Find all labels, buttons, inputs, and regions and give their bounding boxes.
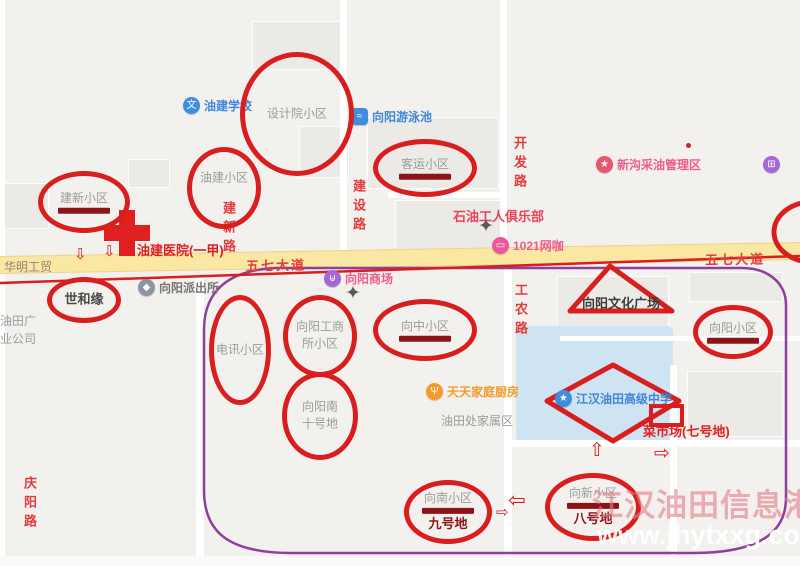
road-label: 五七大道 [246, 254, 306, 274]
road [196, 277, 204, 566]
chat-bubble-icon: ▭ [492, 237, 509, 254]
circle-annotation [282, 372, 358, 460]
arrow-annotation-up: ⇧ [589, 441, 605, 460]
circle-annotation [404, 480, 492, 544]
arrow-annotation-left: ⇦ [508, 490, 526, 511]
police-badge-icon: ◆ [138, 279, 155, 296]
plaza-label: 向阳文化广场 [582, 293, 660, 312]
circle-annotation [187, 147, 261, 229]
poi-label: 向阳游泳池 [372, 108, 432, 125]
poi: ≈向阳游泳池 [351, 108, 432, 125]
road [504, 440, 800, 447]
poi-label: 向阳派出所 [159, 279, 219, 296]
poi-label: 石油工人俱乐部 [453, 206, 544, 225]
circle-annotation [47, 277, 121, 323]
shopping-bag-icon: ⊎ [324, 270, 341, 287]
road-label: 建设路 [349, 179, 368, 236]
star-badge-icon: ★ [596, 156, 613, 173]
restaurant-icon: Ψ [426, 383, 443, 400]
building-block [690, 273, 782, 301]
circle-annotation [373, 139, 477, 197]
poi-label: 油建医院(一甲) [137, 240, 224, 259]
area-label: 油田广 业公司 [0, 312, 36, 348]
crossroad-star-icon: ✦ [478, 217, 494, 236]
poi: Ψ天天家庭厨房 [426, 383, 519, 400]
road [0, 0, 5, 566]
red-dot-annotation [686, 143, 691, 148]
road-label: 庆阳路 [20, 476, 39, 533]
poi-label: 1021网咖 [513, 237, 564, 254]
building-block [129, 160, 169, 187]
road-label: 工农路 [511, 283, 530, 340]
poi: ⊞ [763, 156, 780, 173]
area-label: 油田处家属区 [441, 412, 513, 430]
school-icon: 文 [183, 97, 200, 114]
circle-annotation [693, 305, 773, 359]
road-label: 开发路 [510, 136, 529, 193]
poi-text: 石油工人俱乐部 [453, 206, 544, 225]
poi: ◆向阳派出所 [138, 279, 219, 296]
arrow-annotation-down: ⇩ [103, 244, 116, 259]
poi-label: 新沟采油管理区 [617, 156, 701, 173]
circle-annotation [209, 295, 271, 405]
school-icon: ★ [555, 390, 572, 407]
arrow-annotation-down: ⇩ [74, 247, 87, 262]
shopping-cart-icon: ⊞ [763, 156, 780, 173]
road-label: 五七大道 [705, 248, 765, 268]
map-canvas[interactable]: 向阳文化广场 江汉油田信息港 www.jhytxxg.com 五七大道五七大道建… [0, 0, 800, 566]
poi: ★新沟采油管理区 [596, 156, 701, 173]
circle-annotation [240, 52, 354, 176]
poi-label: 天天家庭厨房 [447, 383, 519, 400]
road [0, 556, 800, 566]
poi: ▭1021网咖 [492, 237, 564, 254]
circle-annotation [38, 171, 130, 233]
circle-annotation [373, 299, 477, 361]
circle-annotation [283, 295, 357, 377]
arrow-annotation-right: ⇨ [654, 444, 670, 463]
arrow-annotation-right: ⇨ [496, 505, 509, 520]
watermark-url: www.jhytxxg.com [597, 520, 800, 551]
watermark-title: 江汉油田信息港 [592, 480, 800, 525]
crossroad-star-icon: ✦ [345, 284, 361, 303]
poi-text: 油建医院(一甲) [137, 240, 224, 259]
area-label: 华明工贸 [4, 258, 52, 276]
market-rect-annotation [649, 404, 684, 427]
